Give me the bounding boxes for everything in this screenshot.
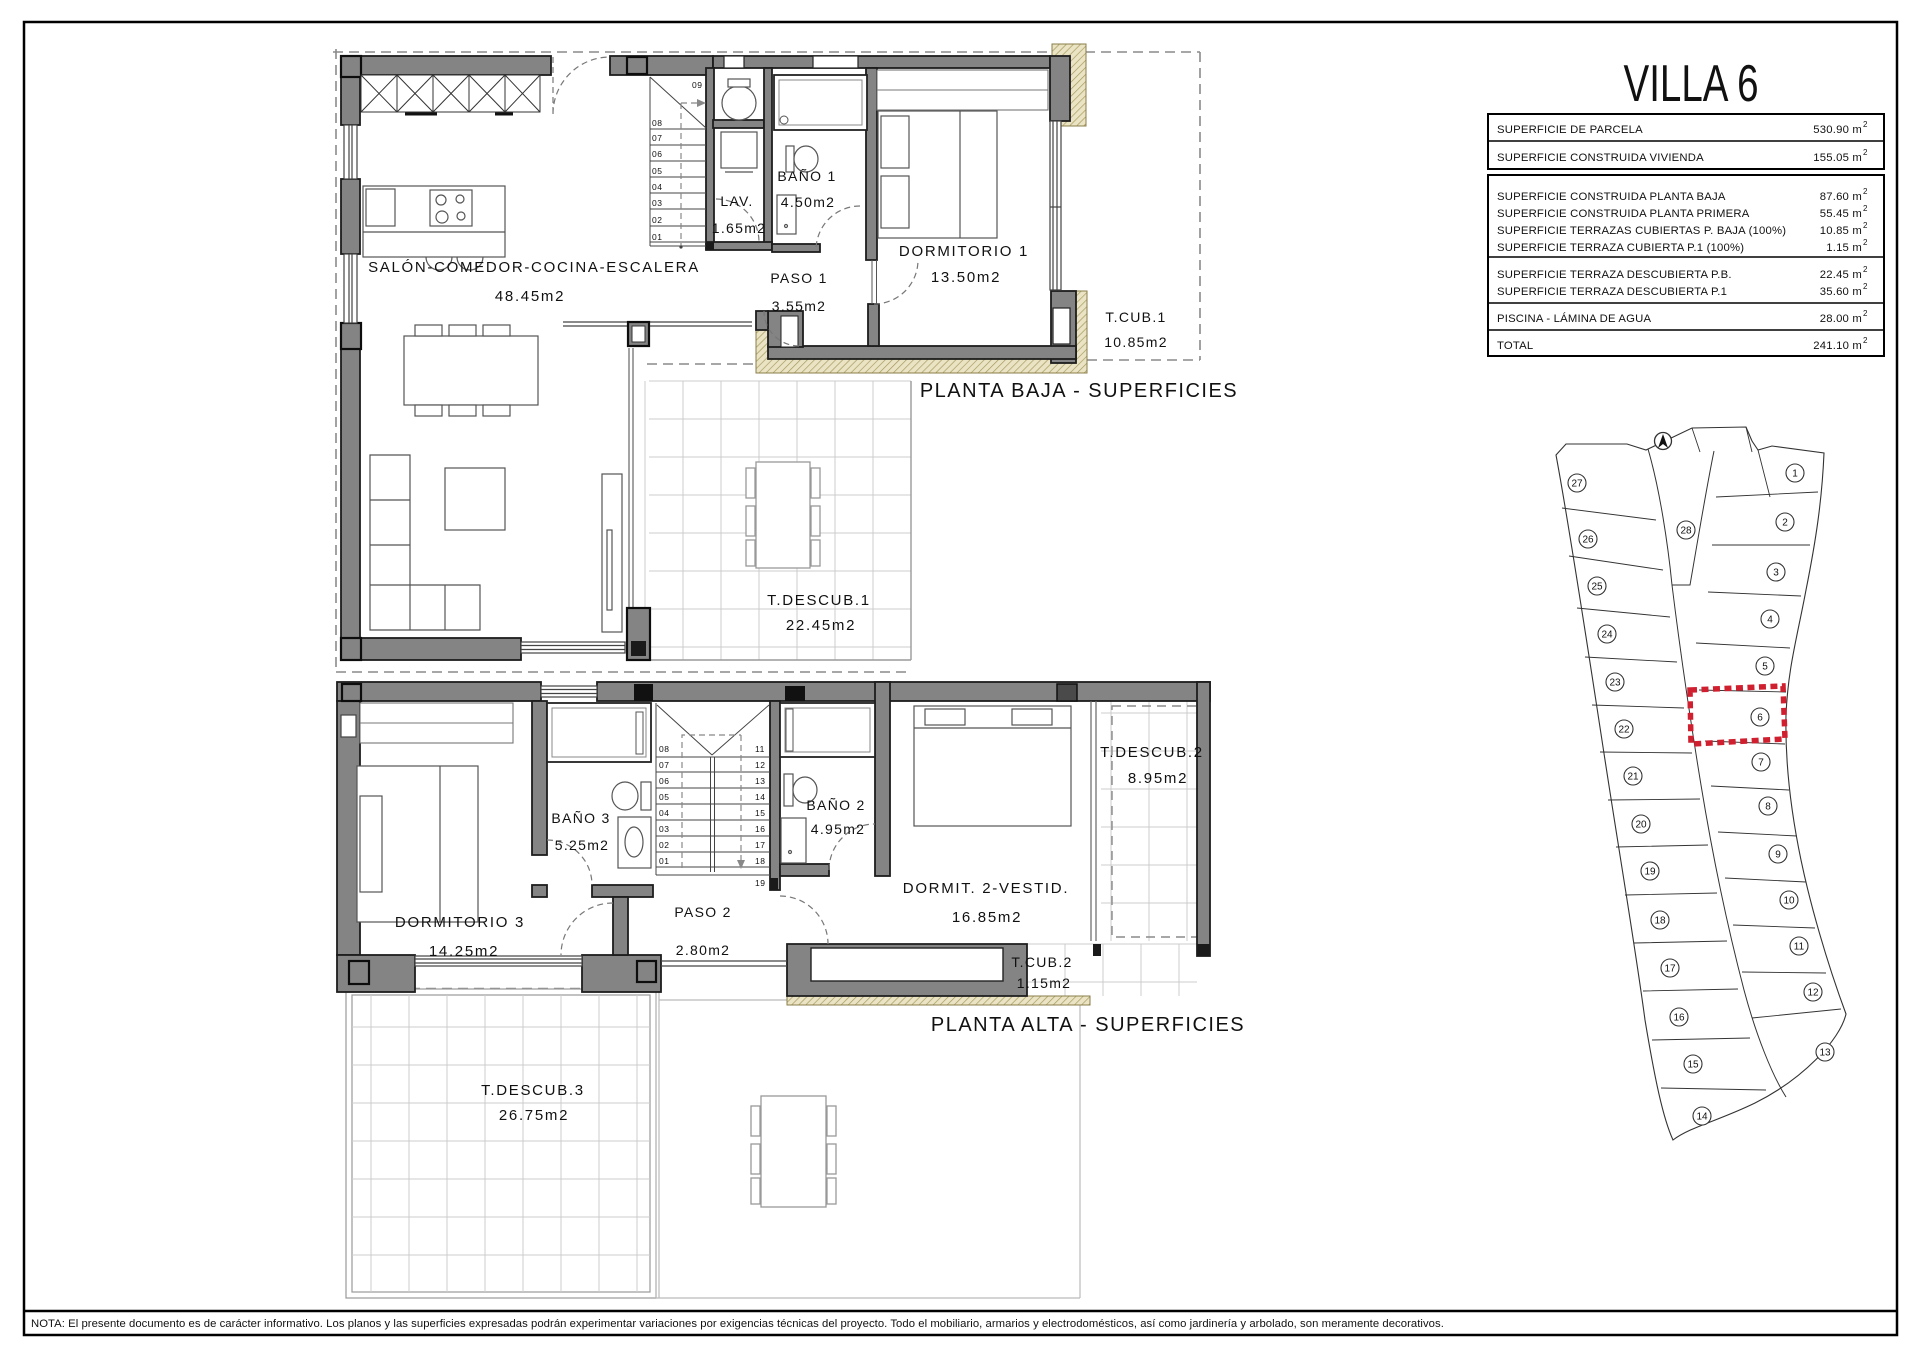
svg-text:5: 5 <box>1762 662 1768 673</box>
svg-text:11: 11 <box>1794 942 1805 953</box>
svg-text:16.85m2: 16.85m2 <box>952 909 1022 926</box>
svg-text:24: 24 <box>1601 630 1613 641</box>
svg-text:15: 15 <box>1687 1060 1699 1071</box>
svg-text:2: 2 <box>1863 238 1868 247</box>
svg-text:VILLA 6: VILLA 6 <box>1624 55 1759 113</box>
svg-text:9: 9 <box>1775 850 1781 861</box>
svg-text:2: 2 <box>1863 187 1868 196</box>
svg-text:DORMITORIO 1: DORMITORIO 1 <box>899 243 1029 260</box>
svg-text:PASO 1: PASO 1 <box>770 270 827 286</box>
svg-text:2: 2 <box>1782 518 1788 529</box>
svg-text:2: 2 <box>1863 148 1868 157</box>
svg-text:1.65m2: 1.65m2 <box>712 220 767 236</box>
svg-text:SUPERFICIE DE PARCELA: SUPERFICIE DE PARCELA <box>1497 124 1643 136</box>
svg-text:08: 08 <box>659 744 669 754</box>
svg-text:21: 21 <box>1627 772 1639 783</box>
svg-text:2.80m2: 2.80m2 <box>676 942 731 958</box>
svg-text:25: 25 <box>1591 582 1603 593</box>
svg-text:PLANTA BAJA - SUPERFICIES: PLANTA BAJA - SUPERFICIES <box>920 380 1238 402</box>
svg-text:155.05 m: 155.05 m <box>1813 152 1862 164</box>
svg-text:14.25m2: 14.25m2 <box>429 943 499 960</box>
svg-text:28.00 m: 28.00 m <box>1820 313 1862 325</box>
svg-text:06: 06 <box>659 776 669 786</box>
svg-text:11: 11 <box>755 744 765 754</box>
svg-text:10: 10 <box>1783 896 1795 907</box>
svg-text:04: 04 <box>652 182 662 192</box>
svg-text:T.DESCUB.1: T.DESCUB.1 <box>767 592 871 609</box>
svg-text:2: 2 <box>1863 336 1868 345</box>
svg-text:LAV.: LAV. <box>720 193 753 209</box>
svg-text:7: 7 <box>1758 758 1764 769</box>
svg-text:87.60 m: 87.60 m <box>1820 191 1862 203</box>
svg-text:04: 04 <box>659 808 669 818</box>
svg-text:SUPERFICIE CONSTRUIDA VIVIENDA: SUPERFICIE CONSTRUIDA VIVIENDA <box>1497 152 1704 164</box>
svg-text:SUPERFICIE TERRAZA DESCUBIERTA: SUPERFICIE TERRAZA DESCUBIERTA P.B. <box>1497 269 1732 281</box>
svg-text:241.10 m: 241.10 m <box>1813 340 1862 352</box>
svg-text:07: 07 <box>652 133 662 143</box>
svg-text:1: 1 <box>1792 469 1798 480</box>
svg-text:2: 2 <box>1863 282 1868 291</box>
svg-text:T.DESCUB.2: T.DESCUB.2 <box>1100 744 1204 761</box>
svg-text:19: 19 <box>1644 867 1656 878</box>
svg-text:SUPERFICIE CONSTRUIDA PLANTA P: SUPERFICIE CONSTRUIDA PLANTA PRIMERA <box>1497 208 1750 220</box>
svg-text:01: 01 <box>652 232 662 242</box>
svg-text:55.45 m: 55.45 m <box>1820 208 1862 220</box>
svg-text:3.55m2: 3.55m2 <box>772 298 827 314</box>
svg-text:13.50m2: 13.50m2 <box>931 269 1001 286</box>
svg-text:8.95m2: 8.95m2 <box>1128 770 1188 787</box>
svg-text:23: 23 <box>1609 678 1621 689</box>
svg-text:15: 15 <box>755 808 765 818</box>
svg-text:17: 17 <box>755 840 765 850</box>
svg-text:26.75m2: 26.75m2 <box>499 1107 569 1124</box>
svg-text:27: 27 <box>1571 479 1583 490</box>
svg-text:T.CUB.1: T.CUB.1 <box>1105 309 1166 325</box>
svg-text:22: 22 <box>1618 725 1630 736</box>
svg-text:03: 03 <box>659 824 669 834</box>
svg-text:18: 18 <box>1654 916 1666 927</box>
svg-text:T.CUB.2: T.CUB.2 <box>1011 954 1072 970</box>
svg-text:35.60 m: 35.60 m <box>1820 286 1862 298</box>
svg-text:20: 20 <box>1635 820 1647 831</box>
svg-text:05: 05 <box>652 166 662 176</box>
svg-text:26: 26 <box>1582 535 1594 546</box>
svg-text:48.45m2: 48.45m2 <box>495 288 565 305</box>
svg-text:12: 12 <box>1807 988 1819 999</box>
svg-text:2: 2 <box>1863 221 1868 230</box>
svg-text:13: 13 <box>755 776 765 786</box>
svg-text:PASO 2: PASO 2 <box>674 904 731 920</box>
svg-text:5.25m2: 5.25m2 <box>555 837 610 853</box>
svg-text:07: 07 <box>659 760 669 770</box>
svg-text:BAÑO 1: BAÑO 1 <box>777 168 836 184</box>
svg-text:14: 14 <box>755 792 765 802</box>
svg-text:4.95m2: 4.95m2 <box>811 821 866 837</box>
svg-text:530.90 m: 530.90 m <box>1813 124 1862 136</box>
svg-text:12: 12 <box>755 760 765 770</box>
svg-text:10.85 m: 10.85 m <box>1820 225 1862 237</box>
svg-text:TOTAL: TOTAL <box>1497 340 1533 352</box>
svg-text:13: 13 <box>1819 1048 1831 1059</box>
svg-text:SUPERFICIE TERRAZAS CUBIERTAS: SUPERFICIE TERRAZAS CUBIERTAS P. BAJA (1… <box>1497 225 1786 237</box>
svg-text:01: 01 <box>659 856 669 866</box>
svg-text:16: 16 <box>755 824 765 834</box>
svg-text:T.DESCUB.3: T.DESCUB.3 <box>481 1082 585 1099</box>
svg-text:4.50m2: 4.50m2 <box>781 194 836 210</box>
svg-text:09: 09 <box>692 80 702 90</box>
svg-text:2: 2 <box>1863 120 1868 129</box>
svg-text:DORMITORIO 3: DORMITORIO 3 <box>395 914 525 931</box>
svg-text:06: 06 <box>652 149 662 159</box>
svg-text:02: 02 <box>659 840 669 850</box>
svg-text:DORMIT. 2-VESTID.: DORMIT. 2-VESTID. <box>903 880 1069 897</box>
svg-text:2: 2 <box>1863 265 1868 274</box>
svg-text:3: 3 <box>1773 568 1779 579</box>
svg-text:NOTA: El presente documento es: NOTA: El presente documento es de caráct… <box>31 1318 1444 1330</box>
svg-text:19: 19 <box>755 878 765 888</box>
svg-text:6: 6 <box>1757 713 1763 724</box>
svg-text:14: 14 <box>1696 1112 1708 1123</box>
svg-text:10.85m2: 10.85m2 <box>1104 334 1168 350</box>
svg-text:PLANTA ALTA - SUPERFICIES: PLANTA ALTA - SUPERFICIES <box>931 1014 1245 1036</box>
svg-text:03: 03 <box>652 198 662 208</box>
svg-text:2: 2 <box>1863 204 1868 213</box>
svg-text:1.15 m: 1.15 m <box>1826 242 1862 254</box>
svg-text:1.15m2: 1.15m2 <box>1017 975 1072 991</box>
svg-text:2: 2 <box>1863 309 1868 318</box>
svg-text:PISCINA - LÁMINA DE AGUA: PISCINA - LÁMINA DE AGUA <box>1497 312 1651 325</box>
svg-text:18: 18 <box>755 856 765 866</box>
svg-text:28: 28 <box>1680 526 1692 537</box>
svg-text:17: 17 <box>1664 964 1676 975</box>
svg-text:02: 02 <box>652 215 662 225</box>
svg-text:05: 05 <box>659 792 669 802</box>
svg-text:22.45m2: 22.45m2 <box>786 617 856 634</box>
svg-text:SALÓN-COMEDOR-COCINA-ESCALERA: SALÓN-COMEDOR-COCINA-ESCALERA <box>368 259 700 276</box>
svg-text:8: 8 <box>1765 802 1771 813</box>
svg-text:08: 08 <box>652 118 662 128</box>
svg-text:SUPERFICIE TERRAZA CUBIERTA P.: SUPERFICIE TERRAZA CUBIERTA P.1 (100%) <box>1497 242 1744 254</box>
svg-text:SUPERFICIE CONSTRUIDA PLANTA B: SUPERFICIE CONSTRUIDA PLANTA BAJA <box>1497 191 1726 203</box>
svg-text:4: 4 <box>1767 615 1773 626</box>
svg-text:22.45 m: 22.45 m <box>1820 269 1862 281</box>
svg-text:BAÑO 2: BAÑO 2 <box>806 797 865 813</box>
svg-text:16: 16 <box>1673 1013 1685 1024</box>
svg-text:SUPERFICIE TERRAZA DESCUBIERTA: SUPERFICIE TERRAZA DESCUBIERTA P.1 <box>1497 286 1727 298</box>
svg-text:BAÑO 3: BAÑO 3 <box>551 810 610 826</box>
